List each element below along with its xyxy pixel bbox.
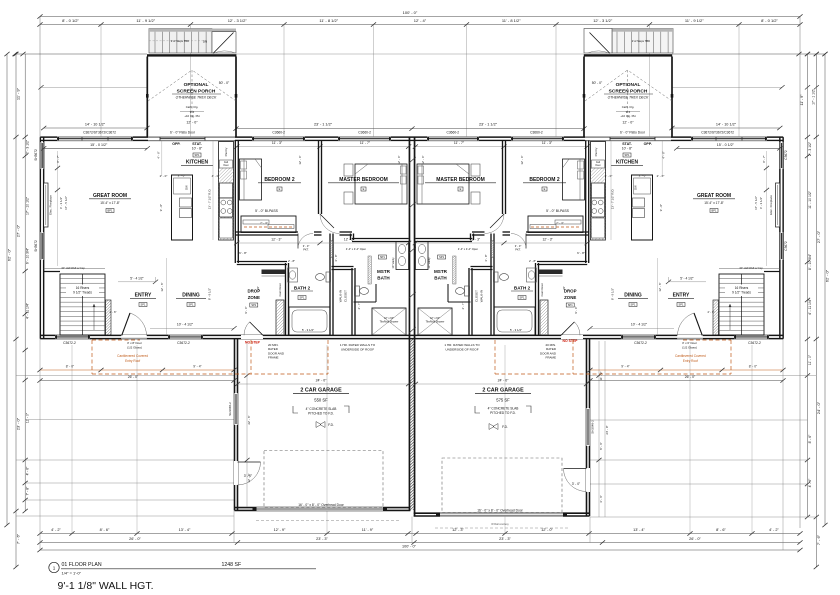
svg-text:11' - 3": 11' - 3" — [542, 141, 553, 145]
svg-text:Cantilevered Covered: Cantilevered Covered — [675, 354, 706, 358]
svg-text:BP1: BP1 — [712, 209, 717, 213]
svg-text:SP1: SP1 — [189, 303, 194, 307]
svg-text:SP1: SP1 — [195, 153, 200, 157]
svg-text:UNDERSIDE OF ROOF: UNDERSIDE OF ROOF — [341, 348, 374, 352]
svg-text:26' - 0": 26' - 0" — [129, 537, 141, 541]
svg-text:9' - 4": 9' - 4" — [193, 365, 202, 369]
svg-text:OTHERWISE TREX DECK: OTHERWISE TREX DECK — [608, 96, 650, 100]
svg-text:8' - 6": 8' - 6" — [599, 442, 603, 450]
svg-text:C3672/ST3672/C3672: C3672/ST3672/C3672 — [83, 131, 116, 135]
svg-text:2' - 8": 2' - 8" — [529, 259, 536, 263]
svg-text:SCREEN PORCH: SCREEN PORCH — [177, 89, 216, 95]
svg-text:DINING: DINING — [182, 293, 200, 299]
svg-text:16 Risers: 16 Risers — [76, 286, 90, 290]
svg-text:FRAME: FRAME — [268, 356, 279, 360]
svg-text:WALK-IN: WALK-IN — [480, 290, 484, 302]
svg-text:27' - 0": 27' - 0" — [16, 224, 21, 237]
svg-text:BEDROOM 2: BEDROOM 2 — [264, 177, 295, 183]
svg-text:8' - 7": 8' - 7" — [762, 155, 766, 162]
svg-text:550 SF: 550 SF — [314, 398, 328, 403]
svg-text:4" CONCRETE SLAB: 4" CONCRETE SLAB — [306, 407, 337, 411]
svg-text:1: 1 — [53, 566, 56, 571]
svg-text:23' - 0": 23' - 0" — [16, 417, 21, 430]
svg-text:SH3048-2: SH3048-2 — [591, 420, 595, 434]
svg-text:12' - 0": 12' - 0" — [541, 528, 553, 532]
svg-text:C3660-2: C3660-2 — [358, 131, 371, 135]
svg-text:SCREEN PORCH: SCREEN PORCH — [609, 89, 648, 95]
svg-text:9'-1 1/8" WALL HGT.: 9'-1 1/8" WALL HGT. — [58, 580, 154, 592]
svg-text:26' - 0": 26' - 0" — [689, 537, 701, 541]
svg-text:C3660-2: C3660-2 — [446, 131, 459, 135]
svg-text:Oven: Oven — [223, 165, 229, 167]
svg-text:4' - 6": 4' - 6" — [599, 495, 603, 503]
svg-text:17' - 1 1/2": 17' - 1 1/2" — [812, 88, 816, 105]
svg-text:E: E — [460, 187, 462, 191]
svg-text:ZONE: ZONE — [248, 295, 260, 300]
svg-text:24": 24" — [562, 286, 566, 290]
svg-text:SH3672: SH3672 — [34, 149, 38, 161]
svg-text:3' x 8' Door: 3' x 8' Door — [127, 341, 142, 345]
svg-text:12' - 4": 12' - 4" — [298, 155, 302, 164]
svg-text:W Rail courtesy: W Rail courtesy — [491, 523, 509, 526]
svg-text:3' - 8": 3' - 8" — [484, 254, 488, 261]
svg-text:F.D.: F.D. — [328, 423, 334, 427]
svg-text:4' - 6": 4' - 6" — [25, 466, 29, 475]
svg-text:C3672-2: C3672-2 — [748, 341, 761, 345]
svg-text:7' - 3": 7' - 3" — [260, 221, 268, 225]
svg-text:ENTRY: ENTRY — [135, 293, 152, 299]
svg-text:Entry Roof: Entry Roof — [125, 359, 140, 363]
svg-text:9' - 4": 9' - 4" — [621, 365, 630, 369]
svg-text:STAT.: STAT. — [192, 142, 202, 146]
svg-text:4' - 11 1/4": 4' - 11 1/4" — [808, 298, 812, 315]
svg-text:Cab: Cab — [596, 162, 601, 164]
svg-text:BEDROOM 2: BEDROOM 2 — [529, 177, 560, 183]
svg-text:12' - 3 1/2": 12' - 3 1/2" — [228, 18, 248, 23]
svg-text:+10 Clg. Pkt: +10 Clg. Pkt — [184, 114, 200, 118]
svg-text:9' - 0": 9' - 0" — [159, 204, 163, 211]
svg-text:16' - 0" x 8' - 0" Overhead D: 16' - 0" x 8' - 0" Overhead Door — [477, 508, 523, 512]
svg-text:MASTER BEDROOM: MASTER BEDROOM — [436, 177, 485, 183]
svg-text:13' - 4": 13' - 4" — [179, 528, 191, 532]
svg-text:8' - 9 1/2": 8' - 9 1/2" — [208, 288, 212, 300]
svg-text:7' - 8": 7' - 8" — [25, 486, 29, 495]
svg-text:SP1: SP1 — [568, 303, 573, 307]
svg-text:STAT.: STAT. — [622, 142, 632, 146]
svg-text:12' - 3": 12' - 3" — [542, 238, 553, 242]
svg-text:62' - 0": 62' - 0" — [7, 248, 12, 261]
svg-text:4' - 3 1/2": 4' - 3 1/2" — [759, 197, 763, 209]
svg-text:2' - 3 1/2": 2' - 3 1/2" — [808, 141, 812, 156]
svg-text:27' - 0": 27' - 0" — [816, 230, 821, 243]
svg-text:PKT.: PKT. — [303, 248, 309, 252]
svg-text:12' - 0": 12' - 0" — [186, 121, 198, 125]
svg-text:13' - 7 1/2" R.O.: 13' - 7 1/2" R.O. — [208, 189, 212, 210]
svg-text:3' - 0": 3' - 0" — [303, 244, 310, 248]
svg-text:11' - 9 1/2": 11' - 9 1/2" — [685, 18, 704, 23]
svg-text:SP1: SP1 — [631, 303, 636, 307]
svg-text:8' - 10 3/4": 8' - 10 3/4" — [808, 253, 812, 270]
svg-text:10' - 4 1/2": 10' - 4 1/2" — [631, 323, 648, 327]
svg-text:100' - 0": 100' - 0" — [403, 10, 418, 15]
svg-text:17' - 5 1/2": 17' - 5 1/2" — [64, 196, 68, 210]
svg-text:Pantry: Pantry — [594, 147, 598, 156]
svg-text:NO STEP: NO STEP — [245, 341, 261, 345]
svg-text:SP1: SP1 — [679, 303, 684, 307]
svg-text:BATH: BATH — [377, 276, 390, 281]
svg-text:C3672: C3672 — [784, 241, 788, 251]
svg-text:Tile/Mud Shower: Tile/Mud Shower — [426, 321, 445, 324]
svg-text:11' - 9 1/2": 11' - 9 1/2" — [136, 18, 155, 23]
svg-text:DN: DN — [203, 39, 207, 43]
svg-text:4' - 2": 4' - 2" — [769, 528, 779, 532]
svg-text:11' - 7": 11' - 7" — [454, 141, 465, 145]
svg-text:SH3048-2: SH3048-2 — [228, 402, 232, 416]
svg-text:2 CAR GARAGE: 2 CAR GARAGE — [482, 388, 524, 394]
svg-text:11' - 10 1/2": 11' - 10 1/2" — [808, 190, 812, 209]
svg-text:24": 24" — [256, 286, 260, 290]
svg-text:6' - 0" Patio Door: 6' - 0" Patio Door — [620, 131, 646, 135]
svg-text:KITCHEN: KITCHEN — [616, 160, 639, 166]
svg-text:Coat Closet: Coat Closet — [541, 283, 544, 296]
svg-text:12' - 4": 12' - 4" — [520, 155, 524, 164]
svg-text:1 HR. RATED WALLS TO: 1 HR. RATED WALLS TO — [340, 343, 376, 347]
svg-text:11' - 0": 11' - 0" — [808, 354, 812, 365]
svg-text:C3660-2: C3660-2 — [272, 131, 285, 135]
svg-text:5' - 4 1/2": 5' - 4 1/2" — [680, 277, 693, 281]
svg-text:BATH 2: BATH 2 — [514, 286, 531, 291]
svg-text:8' - 0 1/2": 8' - 0 1/2" — [62, 18, 79, 23]
svg-text:1248 SF: 1248 SF — [222, 562, 242, 568]
svg-text:4'-4" x 4'-4" Open: 4'-4" x 4'-4" Open — [346, 247, 367, 251]
svg-text:SP1: SP1 — [380, 255, 385, 259]
svg-text:OPP.: OPP. — [644, 142, 652, 146]
svg-text:9 1/2" Treads: 9 1/2" Treads — [73, 291, 92, 295]
svg-text:F.D.: F.D. — [502, 425, 508, 429]
svg-text:11' - 7": 11' - 7" — [360, 141, 371, 145]
svg-text:2' - 3 1/2": 2' - 3 1/2" — [25, 139, 29, 154]
svg-text:8' - 0": 8' - 0" — [66, 365, 75, 369]
svg-text:12' - 4": 12' - 4" — [397, 155, 401, 164]
svg-text:8' - 0 1/2": 8' - 0 1/2" — [761, 18, 778, 23]
svg-text:BATH 2: BATH 2 — [294, 286, 311, 291]
svg-text:10' - 8": 10' - 8" — [622, 147, 633, 151]
svg-text:Cath. Clg.: Cath. Clg. — [186, 105, 199, 109]
svg-text:(1/2 Glass): (1/2 Glass) — [127, 346, 142, 350]
svg-text:Cantilevered Covered: Cantilevered Covered — [117, 354, 148, 358]
svg-text:NO STEP: NO STEP — [563, 339, 579, 343]
svg-text:SP1: SP1 — [141, 303, 146, 307]
svg-text:9' - 6": 9' - 6" — [574, 306, 578, 313]
svg-text:12' - 6": 12' - 6" — [658, 282, 662, 291]
svg-text:SP1: SP1 — [439, 255, 444, 259]
svg-text:24' - 0": 24' - 0" — [605, 425, 609, 434]
svg-text:13' - 7 1/2" R.O.: 13' - 7 1/2" R.O. — [610, 189, 614, 210]
svg-text:9' - 6": 9' - 6" — [244, 306, 248, 313]
svg-text:PITCHED TO F.D.: PITCHED TO F.D. — [308, 412, 334, 416]
svg-text:11' - 8 1/2": 11' - 8 1/2" — [319, 18, 338, 23]
svg-text:8' - 9 1/2": 8' - 9 1/2" — [611, 288, 615, 300]
svg-text:2 CAR GARAGE: 2 CAR GARAGE — [300, 388, 342, 394]
svg-text:12' - 6": 12' - 6" — [160, 282, 164, 291]
svg-text:4'-4" x 4'-4" Open: 4'-4" x 4'-4" Open — [458, 247, 479, 251]
svg-text:GREAT ROOM: GREAT ROOM — [697, 193, 731, 199]
svg-text:BATH: BATH — [434, 276, 447, 281]
svg-text:12' - 3 1/2": 12' - 3 1/2" — [593, 18, 613, 23]
svg-text:4' - 6": 4' - 6" — [157, 151, 161, 158]
svg-text:DW: DW — [634, 185, 638, 190]
svg-text:E: E — [363, 187, 365, 191]
svg-text:DW: DW — [185, 185, 189, 190]
svg-text:15' - 0 1/2": 15' - 0 1/2" — [90, 143, 108, 147]
svg-text:2' - 0": 2' - 0" — [160, 174, 168, 178]
svg-text:C3672-2: C3672-2 — [177, 341, 190, 345]
svg-text:PITCHED TO F.D.: PITCHED TO F.D. — [490, 411, 516, 415]
svg-text:575 SF: 575 SF — [496, 398, 510, 403]
svg-text:+10 Clg. Pkt: +10 Clg. Pkt — [620, 114, 636, 118]
svg-text:12' - 0": 12' - 0" — [622, 121, 634, 125]
svg-text:C3672-2: C3672-2 — [634, 341, 647, 345]
svg-text:5' - 3 1/2": 5' - 3 1/2" — [510, 328, 522, 332]
svg-text:9' - 0": 9' - 0" — [659, 204, 663, 211]
svg-text:(1/2 Glass): (1/2 Glass) — [682, 346, 697, 350]
svg-text:6' - 8": 6' - 8" — [577, 251, 585, 255]
svg-text:16' - 0" x 8' - 0" Overhead D: 16' - 0" x 8' - 0" Overhead Door — [298, 503, 344, 507]
svg-text:12' - 3": 12' - 3" — [271, 238, 282, 242]
svg-text:CLOSET: CLOSET — [475, 290, 479, 302]
svg-text:Elec. Fireplace: Elec. Fireplace — [769, 195, 773, 215]
svg-text:10' - 8": 10' - 8" — [192, 147, 203, 151]
svg-text:4' - 3 1/2": 4' - 3 1/2" — [59, 197, 63, 209]
svg-text:5' - 0" BI-PASS: 5' - 0" BI-PASS — [546, 209, 569, 213]
svg-text:23' - 1 1/2": 23' - 1 1/2" — [314, 123, 333, 127]
svg-text:2' - 0": 2' - 0" — [657, 174, 665, 178]
svg-text:Tile/Mud Shower: Tile/Mud Shower — [380, 321, 399, 324]
svg-text:15'-4" x 17'-8": 15'-4" x 17'-8" — [100, 201, 120, 205]
svg-text:4' - 6": 4' - 6" — [661, 151, 665, 158]
svg-text:DINING: DINING — [624, 293, 642, 299]
svg-text:# of Steps TBD: # of Steps TBD — [171, 39, 189, 43]
svg-text:17' - 5 1/2": 17' - 5 1/2" — [754, 196, 758, 210]
svg-text:50' - 0": 50' - 0" — [219, 81, 230, 85]
svg-text:WALK-IN: WALK-IN — [339, 290, 343, 302]
svg-text:12' - 9": 12' - 9" — [274, 528, 286, 532]
svg-text:9 1/2" Treads: 9 1/2" Treads — [732, 291, 751, 295]
svg-text:4' - 11 1/4": 4' - 11 1/4" — [25, 302, 29, 319]
svg-text:5' - 3 1/2": 5' - 3 1/2" — [302, 328, 314, 332]
svg-text:3' - 8": 3' - 8" — [334, 254, 338, 261]
svg-text:11' - 0": 11' - 0" — [25, 412, 29, 423]
svg-text:C3672: C3672 — [784, 150, 788, 160]
svg-text:01 FLOOR PLAN: 01 FLOOR PLAN — [62, 562, 102, 568]
svg-text:SP1: SP1 — [300, 296, 305, 300]
svg-text:E: E — [544, 187, 546, 191]
svg-text:4" CONCRETE SLAB: 4" CONCRETE SLAB — [488, 407, 519, 411]
svg-text:KITCHEN: KITCHEN — [186, 160, 209, 166]
svg-text:8' - 7": 8' - 7" — [56, 155, 60, 162]
svg-text:GREAT ROOM: GREAT ROOM — [93, 193, 127, 199]
svg-text:UNDERSIDE OF ROOF: UNDERSIDE OF ROOF — [445, 348, 478, 352]
svg-text:10' Vanity: 10' Vanity — [391, 257, 395, 269]
svg-text:Entry Roof: Entry Roof — [683, 359, 698, 363]
svg-text:23' - 1 1/2": 23' - 1 1/2" — [479, 123, 498, 127]
svg-text:24' - 0": 24' - 0" — [316, 378, 328, 382]
svg-text:ENTRY: ENTRY — [673, 293, 690, 299]
svg-text:11' - 9": 11' - 9" — [800, 94, 804, 106]
svg-text:24' - 0": 24' - 0" — [498, 378, 510, 382]
svg-text:OPTIONAL: OPTIONAL — [616, 82, 641, 88]
svg-text:8' - 6": 8' - 6" — [808, 434, 812, 443]
svg-text:MSTR: MSTR — [434, 269, 448, 274]
svg-text:23' - 3": 23' - 3" — [499, 537, 511, 541]
svg-text:13' - 4": 13' - 4" — [633, 528, 645, 532]
svg-text:C3672/ST3672/C3672: C3672/ST3672/C3672 — [701, 131, 734, 135]
svg-text:ZONE: ZONE — [564, 295, 576, 300]
svg-text:Oven: Oven — [595, 165, 601, 167]
svg-text:12' - 4": 12' - 4" — [414, 18, 427, 23]
svg-text:Coat Closet: Coat Closet — [279, 283, 282, 296]
svg-text:8' - 6": 8' - 6" — [716, 528, 726, 532]
svg-text:MASTER BEDROOM: MASTER BEDROOM — [339, 177, 388, 183]
svg-text:SP1: SP1 — [625, 153, 630, 157]
svg-text:BP1: BP1 — [108, 209, 113, 213]
svg-text:15'-4" x 17'-8": 15'-4" x 17'-8" — [704, 201, 724, 205]
svg-text:26' - 0": 26' - 0" — [685, 375, 696, 379]
svg-text:SP1: SP1 — [520, 296, 525, 300]
svg-text:C3672-2: C3672-2 — [63, 341, 76, 345]
svg-text:# of Steps TBD: # of Steps TBD — [632, 39, 650, 43]
svg-text:1 HR. RATED WALLS TO: 1 HR. RATED WALLS TO — [444, 343, 480, 347]
svg-text:62' - 0": 62' - 0" — [824, 269, 829, 282]
svg-text:1/4" = 1'-0": 1/4" = 1'-0" — [62, 571, 82, 576]
svg-text:E: E — [279, 187, 281, 191]
svg-text:CLOSET: CLOSET — [344, 290, 348, 302]
svg-text:12' - 6": 12' - 6" — [247, 473, 251, 482]
svg-text:24' - 0": 24' - 0" — [816, 401, 821, 414]
svg-text:10' - 4 1/2": 10' - 4 1/2" — [177, 323, 194, 327]
svg-text:Pantry: Pantry — [224, 147, 228, 156]
svg-text:16 Risers: 16 Risers — [735, 286, 749, 290]
svg-text:6' - 0" Patio Door: 6' - 0" Patio Door — [170, 131, 196, 135]
svg-text:100' - 0": 100' - 0" — [402, 545, 417, 549]
svg-text:Cab: Cab — [224, 162, 229, 164]
svg-text:OTHERWISE TREX DECK: OTHERWISE TREX DECK — [176, 96, 218, 100]
svg-text:FRAME: FRAME — [546, 356, 557, 360]
svg-text:42" Half Wall w/ Cap: 42" Half Wall w/ Cap — [61, 266, 85, 270]
svg-text:5' - 0" BI-PASS: 5' - 0" BI-PASS — [255, 209, 278, 213]
svg-text:26' - 0": 26' - 0" — [128, 375, 139, 379]
svg-text:11' - 9": 11' - 9" — [362, 528, 374, 532]
svg-text:12' - 3": 12' - 3" — [344, 238, 355, 242]
svg-text:14' - 10 1/2": 14' - 10 1/2" — [85, 122, 106, 126]
svg-text:22' - 6": 22' - 6" — [247, 415, 251, 424]
svg-text:OPP.: OPP. — [172, 142, 180, 146]
svg-text:2' - 8": 2' - 8" — [288, 259, 295, 263]
svg-text:14' - 10 1/2": 14' - 10 1/2" — [716, 122, 737, 126]
svg-text:Cath. Clg.: Cath. Clg. — [622, 105, 635, 109]
svg-text:6' - 8": 6' - 8" — [239, 251, 247, 255]
svg-text:12' - 3": 12' - 3" — [452, 528, 464, 532]
svg-text:42" Half Wall w/ Cap: 42" Half Wall w/ Cap — [739, 266, 763, 270]
svg-text:11' - 8 1/2": 11' - 8 1/2" — [502, 18, 521, 23]
svg-text:7' - 6": 7' - 6" — [816, 534, 821, 545]
svg-text:4' - 6": 4' - 6" — [808, 478, 812, 487]
svg-text:12' - 3": 12' - 3" — [470, 238, 481, 242]
svg-text:C3660-2: C3660-2 — [530, 131, 543, 135]
svg-text:5' - 4 1/2": 5' - 4 1/2" — [130, 277, 143, 281]
svg-text:7' - 6": 7' - 6" — [16, 533, 21, 544]
svg-text:8' - 6": 8' - 6" — [100, 528, 110, 532]
svg-text:12' - 4": 12' - 4" — [421, 155, 425, 164]
svg-text:3' - 0": 3' - 0" — [572, 482, 581, 486]
svg-text:MSTR: MSTR — [377, 269, 391, 274]
svg-text:PKT.: PKT. — [515, 248, 521, 252]
svg-text:3' - 0": 3' - 0" — [515, 244, 522, 248]
svg-text:11' - 9": 11' - 9" — [16, 87, 21, 100]
svg-text:SH3672: SH3672 — [34, 240, 38, 252]
svg-text:OPTIONAL: OPTIONAL — [184, 82, 209, 88]
svg-text:SP1: SP1 — [251, 303, 256, 307]
svg-text:7' - 3": 7' - 3" — [556, 221, 564, 225]
svg-text:Elec. Fireplace: Elec. Fireplace — [49, 195, 53, 215]
svg-text:11' - 3": 11' - 3" — [272, 141, 283, 145]
svg-text:2' - 7": 2' - 7" — [357, 303, 361, 310]
svg-text:50' - 0": 50' - 0" — [592, 81, 603, 85]
svg-text:11' - 0": 11' - 0" — [599, 371, 603, 380]
svg-text:17' - 10 1/2": 17' - 10 1/2" — [25, 196, 29, 215]
svg-text:23' - 3": 23' - 3" — [316, 537, 328, 541]
svg-text:8' - 0": 8' - 0" — [749, 365, 758, 369]
svg-text:3' x 6' Door: 3' x 6' Door — [682, 341, 697, 345]
svg-text:4' - 2": 4' - 2" — [51, 528, 61, 532]
svg-text:2' - 7": 2' - 7" — [461, 303, 465, 310]
svg-text:15' - 0 1/2": 15' - 0 1/2" — [717, 143, 735, 147]
svg-text:6' - 10 3/4": 6' - 10 3/4" — [25, 247, 29, 264]
